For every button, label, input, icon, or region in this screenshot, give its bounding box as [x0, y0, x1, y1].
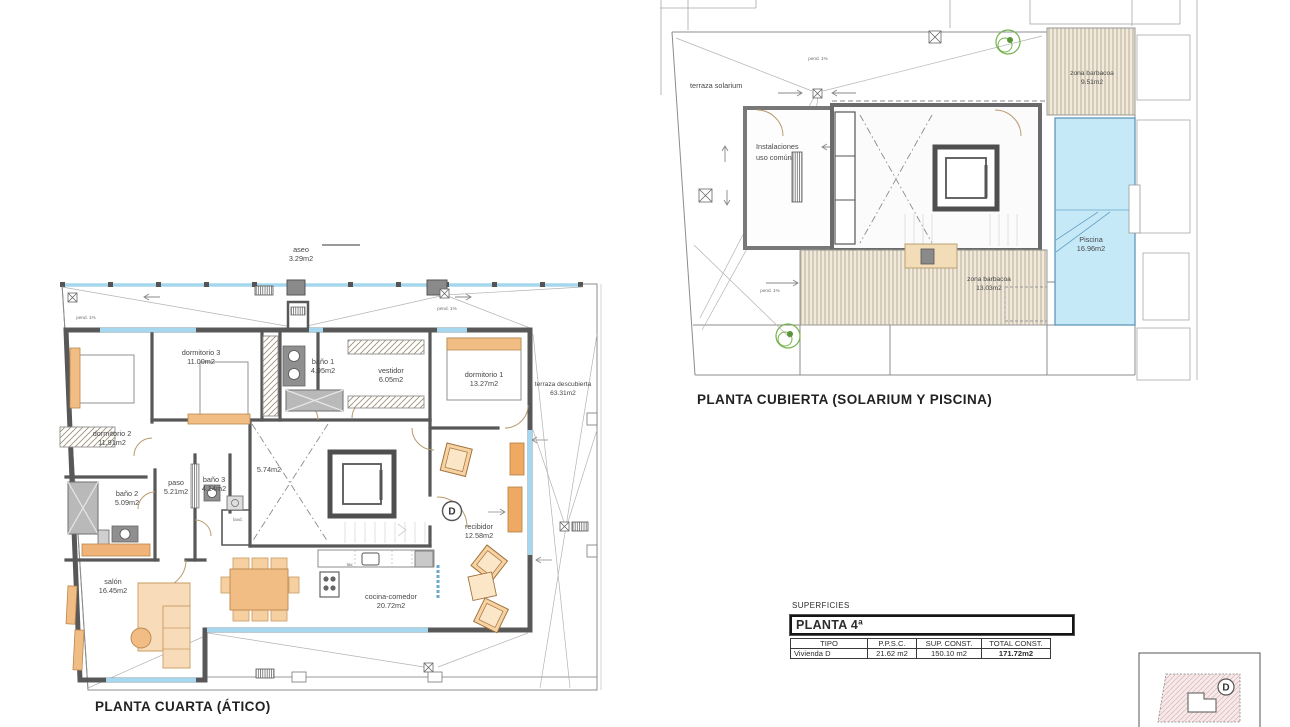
- floorplan-sheet: D aseo 3.29m2 dormitorio 3 11.00m2 baño …: [0, 0, 1290, 727]
- svg-text:9.51m2: 9.51m2: [1081, 79, 1103, 86]
- surfaces-header-row: TIPO P.P.S.C. SUP. CONST. TOTAL CONST.: [791, 639, 1051, 649]
- room-label-solarium: terraza solarium: [690, 81, 742, 90]
- vent-grille-icon: [572, 522, 588, 531]
- floorplan-drawing: D aseo 3.29m2 dormitorio 3 11.00m2 baño …: [0, 0, 1290, 727]
- svg-text:11.91m2: 11.91m2: [98, 438, 126, 447]
- elevator-cab: [343, 464, 381, 504]
- duct-enclosure: [288, 302, 308, 330]
- cell-ppsc: 21.62 m2: [868, 649, 917, 659]
- col-sup-const: SUP. CONST.: [917, 639, 982, 649]
- label-lavabo: lav.: [347, 562, 354, 567]
- roof-stair-core: [832, 101, 1045, 250]
- terrace-slope-lines: [62, 287, 583, 328]
- room-label-piscina: Piscina: [1079, 235, 1103, 244]
- svg-text:63.31m2: 63.31m2: [550, 390, 576, 397]
- room-label-cocina: cocina-comedor: [365, 592, 417, 601]
- room-label-bano1: baño 1: [312, 357, 334, 366]
- label-pend: pend. 1%: [76, 315, 95, 320]
- room-label-terraza: terraza descubierta: [535, 381, 592, 388]
- svg-text:uso común: uso común: [756, 153, 792, 162]
- roof-instalaciones: [745, 108, 836, 248]
- roof-barbacoa-2: [800, 244, 1047, 325]
- floor4-stair-core: [252, 424, 425, 543]
- unit-d-letter: D: [448, 507, 455, 518]
- label-lavadero: lavd.: [233, 517, 243, 522]
- room-label-hueco: 5.74m2: [257, 465, 281, 474]
- key-plan: D: [1139, 653, 1260, 727]
- room-label-bano3: baño 3: [203, 475, 225, 484]
- floor4-title: PLANTA CUARTA (ÁTICO): [95, 699, 271, 714]
- cell-total: 171.72m2: [982, 649, 1051, 659]
- cell-sup: 150.10 m2: [917, 649, 982, 659]
- svg-text:6.05m2: 6.05m2: [379, 375, 403, 384]
- svg-text:12.58m2: 12.58m2: [465, 531, 493, 540]
- direction-arrows: [144, 294, 471, 300]
- col-total-const: TOTAL CONST.: [982, 639, 1051, 649]
- svg-text:4.95m2: 4.95m2: [311, 366, 335, 375]
- room-label-aseo: aseo: [293, 245, 309, 254]
- label-pend: pend. 1%: [437, 306, 456, 311]
- room-label-dormitorio2: dormitorio 2: [93, 429, 132, 438]
- room-label-bano2: baño 2: [116, 489, 138, 498]
- room-label-paso: paso: [168, 478, 184, 487]
- svg-text:5.21m2: 5.21m2: [164, 487, 188, 496]
- stair-treads: [345, 522, 425, 543]
- svg-text:3.29m2: 3.29m2: [289, 254, 313, 263]
- floor4-upper-terrace: [60, 280, 583, 330]
- surfaces-section-label: SUPERFICIES: [792, 601, 1080, 610]
- cell-tipo: Vivienda D: [791, 649, 868, 659]
- roof-title: PLANTA CUBIERTA (SOLARIUM Y PISCINA): [697, 392, 992, 407]
- unit-d-marker: D: [443, 502, 462, 521]
- svg-text:20.72m2: 20.72m2: [377, 601, 405, 610]
- roof-piscina: [1055, 118, 1140, 325]
- vent-grille-icon: [255, 286, 273, 295]
- svg-text:16.96m2: 16.96m2: [1077, 244, 1105, 253]
- label-pend: pend. 1%: [760, 288, 779, 293]
- vent-grille-icon: [256, 669, 274, 678]
- room-label-recibidor: recibidor: [465, 522, 494, 531]
- room-label-instalaciones: Instalaciones: [756, 142, 799, 151]
- surfaces-table: TIPO P.P.S.C. SUP. CONST. TOTAL CONST. V…: [790, 638, 1051, 659]
- room-label-vestidor: vestidor: [378, 366, 404, 375]
- floor4-plan: D aseo 3.29m2 dormitorio 3 11.00m2 baño …: [60, 245, 601, 714]
- room-label-barbacoa2: zona barbacoa: [967, 276, 1011, 283]
- svg-text:13.03m2: 13.03m2: [976, 285, 1002, 292]
- room-label-dormitorio1: dormitorio 1: [465, 370, 504, 379]
- vent-grille-icon: [291, 307, 305, 315]
- roof-plan: terraza solarium Instalaciones uso común…: [660, 0, 1197, 407]
- label-pend: pend. 1%: [808, 56, 827, 61]
- svg-text:11.00m2: 11.00m2: [187, 357, 215, 366]
- elevator-cab: [946, 158, 986, 198]
- column: [287, 280, 305, 295]
- svg-text:5.09m2: 5.09m2: [115, 498, 139, 507]
- surfaces-data-row: Vivienda D 21.62 m2 150.10 m2 171.72m2: [791, 649, 1051, 659]
- electrical-panel: [792, 152, 802, 202]
- surfaces-panel: SUPERFICIES PLANTA 4ª TIPO P.P.S.C. SUP.…: [790, 601, 1080, 659]
- svg-text:16.45m2: 16.45m2: [99, 586, 127, 595]
- drain-marker-icon: [560, 522, 569, 531]
- room-label-salon: salón: [104, 577, 121, 586]
- drain-marker-icon: [424, 663, 433, 672]
- room-label-barbacoa1: zona barbacoa: [1070, 70, 1114, 77]
- key-plan-unit-letter: D: [1222, 683, 1229, 694]
- surfaces-plan-label: PLANTA 4ª: [790, 615, 1074, 635]
- col-ppsc: P.P.S.C.: [868, 639, 917, 649]
- svg-text:13.27m2: 13.27m2: [470, 379, 498, 388]
- svg-text:4.14m2: 4.14m2: [202, 484, 226, 493]
- col-tipo: TIPO: [791, 639, 868, 649]
- room-label-dormitorio3: dormitorio 3: [182, 348, 221, 357]
